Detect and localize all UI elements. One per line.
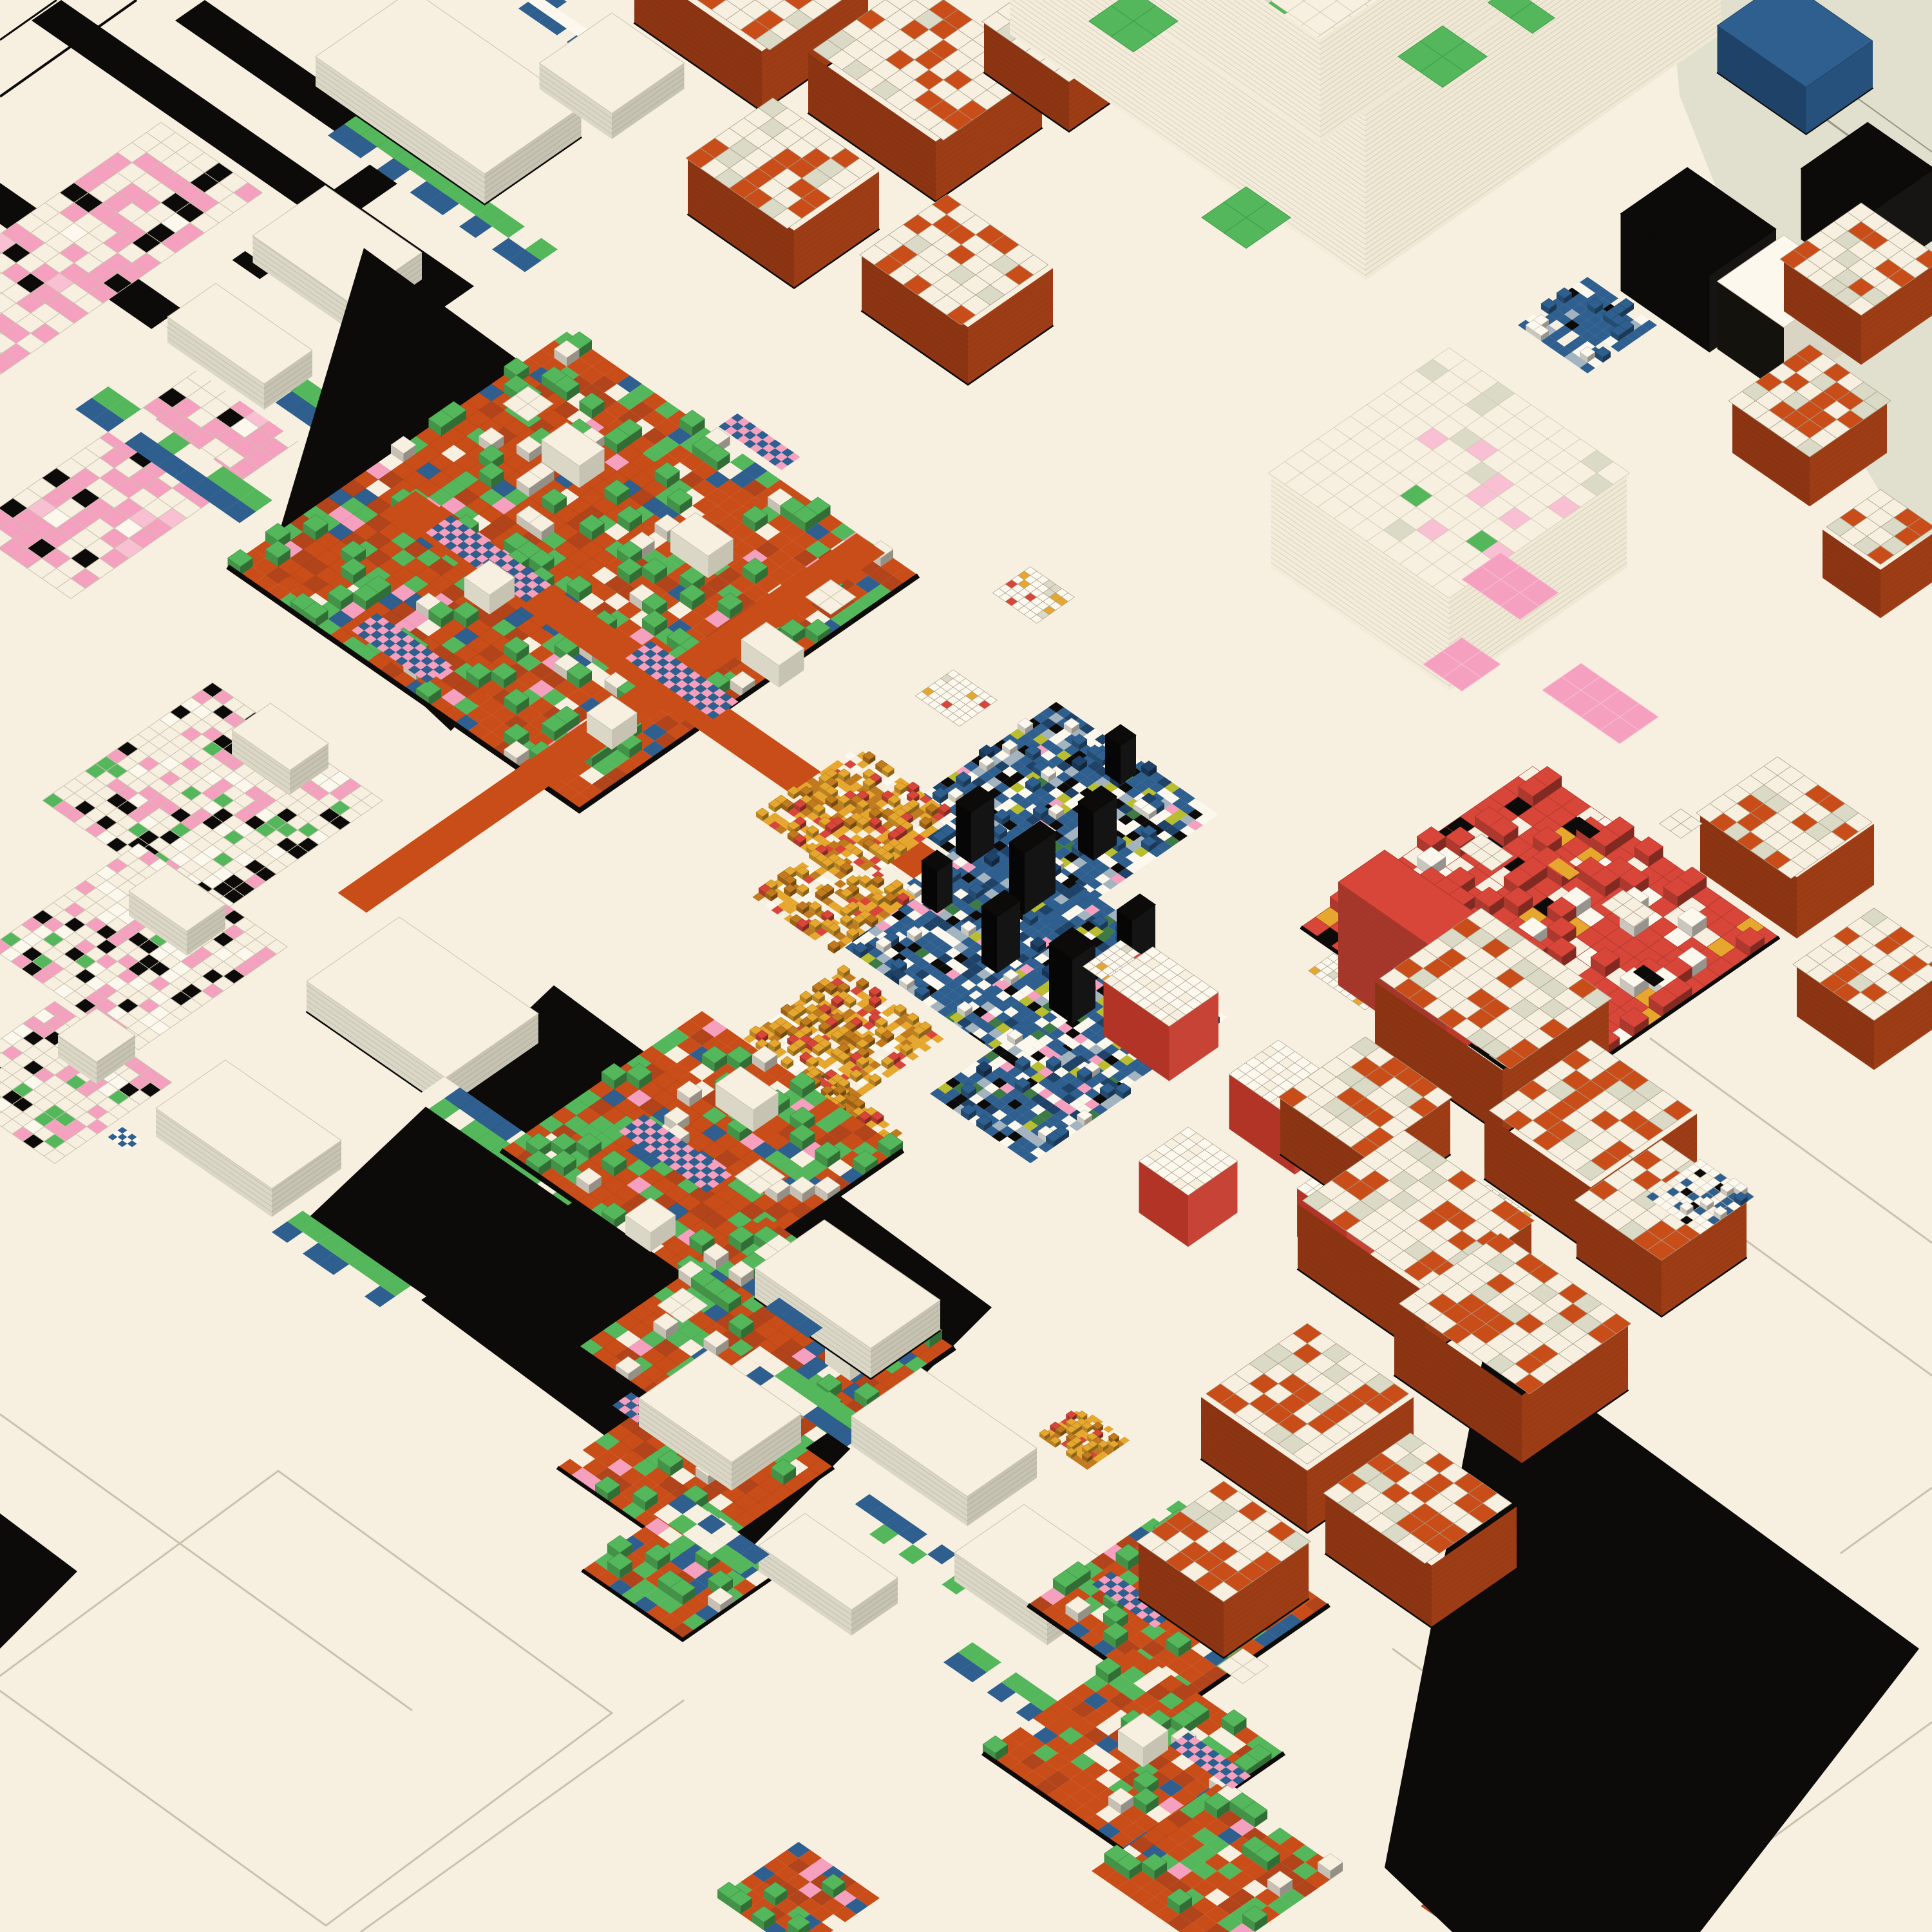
chip-tower-4 xyxy=(981,890,1020,974)
chip-tower-5 xyxy=(1049,927,1095,1024)
artwork-svg xyxy=(0,0,1932,1932)
chip-tower-7 xyxy=(922,850,952,913)
chip-tower-8 xyxy=(1105,724,1136,784)
artwork-stage xyxy=(0,0,1932,1932)
